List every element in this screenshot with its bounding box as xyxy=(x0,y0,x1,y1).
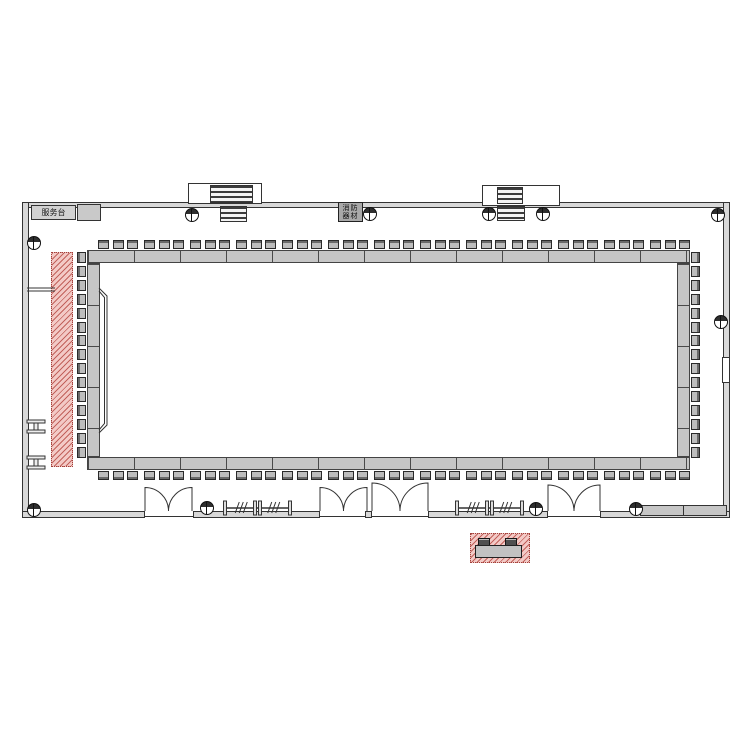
seat xyxy=(691,405,700,416)
seat xyxy=(77,349,86,360)
seat xyxy=(389,471,400,480)
seat xyxy=(619,240,630,249)
column-icon xyxy=(536,207,550,221)
seat xyxy=(374,471,385,480)
seat xyxy=(691,252,700,263)
seat xyxy=(77,405,86,416)
seat xyxy=(113,240,124,249)
seat xyxy=(691,322,700,333)
seat xyxy=(435,240,446,249)
seat xyxy=(77,363,86,374)
seat xyxy=(691,363,700,374)
seat xyxy=(251,240,262,249)
seat xyxy=(297,240,308,249)
seat xyxy=(144,471,155,480)
seat xyxy=(265,471,276,480)
booth-band-left xyxy=(87,263,100,457)
seat xyxy=(587,471,598,480)
seat xyxy=(527,471,538,480)
seat xyxy=(328,240,339,249)
seat xyxy=(297,471,308,480)
column-icon xyxy=(200,501,214,515)
seat xyxy=(633,471,644,480)
seat xyxy=(691,266,700,277)
seat xyxy=(481,471,492,480)
column-icon xyxy=(629,502,643,516)
seat xyxy=(435,471,446,480)
service-desk-text: 服务台 xyxy=(42,207,66,218)
seat xyxy=(357,471,368,480)
seat xyxy=(691,391,700,402)
wall-bottom-pier xyxy=(365,511,372,518)
seat xyxy=(389,240,400,249)
seat xyxy=(481,240,492,249)
seat xyxy=(219,240,230,249)
storage-box xyxy=(77,204,101,221)
seat xyxy=(691,419,700,430)
seat xyxy=(219,471,230,480)
seat xyxy=(98,240,109,249)
seat xyxy=(77,308,86,319)
booth-band-bottom xyxy=(87,457,690,470)
column-icon xyxy=(27,236,41,250)
seat xyxy=(691,433,700,444)
seat xyxy=(98,471,109,480)
staircase-1-lower xyxy=(220,206,247,222)
staircase-2-lower xyxy=(497,206,525,221)
seat xyxy=(159,471,170,480)
seat xyxy=(650,240,661,249)
seat xyxy=(77,322,86,333)
seat xyxy=(466,240,477,249)
seat xyxy=(420,471,431,480)
column-icon xyxy=(27,503,41,517)
floor-plan-canvas: 服务台 消防 器材 xyxy=(0,0,750,750)
seat xyxy=(573,471,584,480)
seat xyxy=(527,240,538,249)
seat xyxy=(604,471,615,480)
seat xyxy=(512,240,523,249)
seat xyxy=(679,240,690,249)
fire-equipment-box: 消防 器材 xyxy=(338,202,363,222)
seat xyxy=(190,240,201,249)
seat xyxy=(236,240,247,249)
stage-backdrop-panel xyxy=(99,288,107,433)
column-icon xyxy=(529,502,543,516)
seat xyxy=(374,240,385,249)
seat xyxy=(691,280,700,291)
seat xyxy=(265,240,276,249)
column-icon xyxy=(711,208,725,222)
double-door xyxy=(320,488,367,512)
seat xyxy=(343,471,354,480)
seat xyxy=(282,240,293,249)
column-icon xyxy=(363,207,377,221)
seat xyxy=(512,471,523,480)
seat xyxy=(251,471,262,480)
seat xyxy=(77,433,86,444)
seat xyxy=(328,471,339,480)
seat xyxy=(691,349,700,360)
linework-overlay xyxy=(0,0,750,750)
seat xyxy=(665,471,676,480)
seat xyxy=(665,240,676,249)
column-icon xyxy=(714,315,728,329)
seat xyxy=(77,447,86,458)
seat xyxy=(77,266,86,277)
i-beam-section-2 xyxy=(27,456,45,469)
bottom-right-counter xyxy=(640,505,727,516)
seat xyxy=(311,471,322,480)
wall-top xyxy=(22,202,730,208)
seat xyxy=(403,471,414,480)
seat xyxy=(127,240,138,249)
seat xyxy=(420,240,431,249)
seat xyxy=(466,471,477,480)
seat xyxy=(558,240,569,249)
fire-equipment-text-line2: 器材 xyxy=(339,213,362,221)
seat xyxy=(587,240,598,249)
right-wall-niche xyxy=(722,357,730,383)
seat xyxy=(343,240,354,249)
i-beam-section-1 xyxy=(27,420,45,433)
seat xyxy=(77,294,86,305)
seat xyxy=(604,240,615,249)
seat xyxy=(205,471,216,480)
seat xyxy=(77,377,86,388)
seat xyxy=(77,335,86,346)
seat xyxy=(495,240,506,249)
seat xyxy=(449,240,460,249)
booth-band-right xyxy=(677,263,690,457)
desk-table xyxy=(475,545,522,558)
seat xyxy=(573,240,584,249)
seat xyxy=(311,240,322,249)
red-hatch-strip xyxy=(51,252,73,467)
seat xyxy=(190,471,201,480)
seat xyxy=(159,240,170,249)
seat xyxy=(691,294,700,305)
seat xyxy=(650,471,661,480)
booth-band-top xyxy=(87,250,690,263)
seat xyxy=(541,471,552,480)
seat xyxy=(449,471,460,480)
seat xyxy=(357,240,368,249)
fire-equipment-text-line1: 消防 xyxy=(339,205,362,213)
seat xyxy=(558,471,569,480)
seat xyxy=(127,471,138,480)
column-icon xyxy=(185,208,199,222)
service-desk-label: 服务台 xyxy=(31,205,76,220)
seat xyxy=(173,471,184,480)
double-door xyxy=(145,488,192,512)
seat xyxy=(495,471,506,480)
seat xyxy=(205,240,216,249)
seat xyxy=(144,240,155,249)
seat xyxy=(691,335,700,346)
seat xyxy=(77,280,86,291)
column-icon xyxy=(482,207,496,221)
wall-left xyxy=(22,202,29,518)
seat xyxy=(282,471,293,480)
seat xyxy=(619,471,630,480)
seat xyxy=(113,471,124,480)
seat xyxy=(691,447,700,458)
double-door xyxy=(548,485,600,511)
staircase-1-upper xyxy=(210,185,253,203)
seat xyxy=(541,240,552,249)
seat xyxy=(679,471,690,480)
seat xyxy=(173,240,184,249)
seat xyxy=(77,419,86,430)
seat xyxy=(77,252,86,263)
seat xyxy=(236,471,247,480)
seat xyxy=(633,240,644,249)
double-door xyxy=(372,483,428,511)
seat xyxy=(77,391,86,402)
seat xyxy=(691,308,700,319)
seat xyxy=(403,240,414,249)
staircase-2-upper xyxy=(497,187,523,204)
seat xyxy=(691,377,700,388)
